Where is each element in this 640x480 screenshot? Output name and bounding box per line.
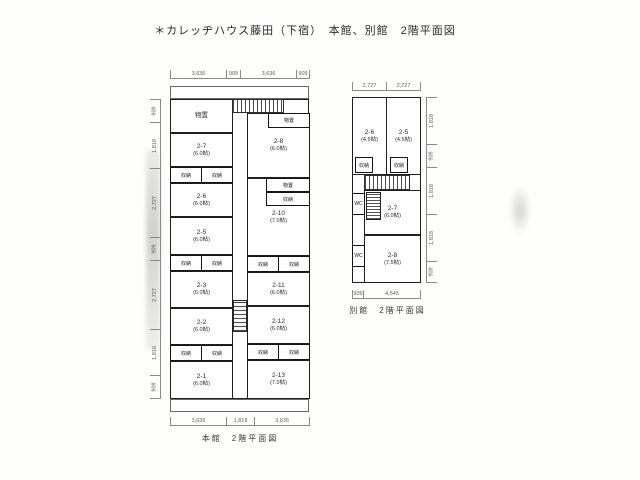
storage-label: 物置: [284, 117, 294, 124]
room-id: 2-5: [399, 129, 408, 137]
annex-closet-hatched: [366, 192, 381, 220]
dimension-label: 1,818: [234, 419, 248, 425]
closet: 収納: [247, 256, 279, 272]
dimension-label: 909: [152, 106, 158, 115]
storage-small: 物置: [268, 113, 310, 128]
closet-label: 収納: [289, 349, 299, 356]
closet-label: 収納: [394, 162, 404, 169]
closet-label: 収納: [258, 349, 268, 356]
room-size: (6.0帖): [193, 237, 210, 244]
room-id: 2-12: [272, 318, 285, 326]
main-dimensions-bottom: 3,636 1,818 3,636: [170, 417, 310, 426]
room-size: (6.0帖): [270, 290, 287, 297]
main-dimensions-top: 3,636 909 3,636 909: [170, 70, 310, 79]
room-id: 2-7: [388, 205, 397, 213]
room-2-6: 2-6 (6.0帖): [170, 183, 233, 217]
room-2-11: 2-11 (6.0帖): [247, 272, 310, 306]
dimension-label: 909: [429, 151, 435, 160]
dimension-label: 1,818: [429, 114, 435, 128]
dimension-label: 4,545: [385, 292, 399, 298]
dimension-label: 2,727: [152, 196, 158, 210]
main-dimensions-left: 909 1,818 2,727 909 2,727 1,818 909: [150, 99, 161, 399]
closet-label: 収納: [181, 172, 191, 179]
room-2-1: 2-1 (6.0帖): [170, 361, 233, 399]
balcony-bottom: [170, 399, 309, 412]
room-storage-top-left: 物置: [170, 99, 233, 133]
dimension-label: 3,636: [262, 72, 276, 78]
room-size: (6.0帖): [193, 381, 210, 388]
room-label: 物置: [195, 112, 208, 120]
dimension-label: 1,818: [152, 346, 158, 360]
closet: 収納: [247, 344, 279, 360]
room-id: 2-8: [274, 138, 283, 146]
main-plan-caption: 本館 2階平面図: [170, 433, 310, 444]
dimension-label: 909: [429, 267, 435, 276]
room-size: (6.0帖): [193, 290, 210, 297]
room-2-13: 2-13 (7.0帖): [247, 360, 310, 399]
room-size: (6.0帖): [384, 213, 401, 220]
room-id: 2-7: [197, 143, 206, 151]
room-size: (4.5帖): [361, 137, 378, 144]
wc-label: WC: [354, 201, 362, 207]
room-size: (6.0帖): [193, 327, 210, 334]
closet-label: 収納: [212, 350, 222, 357]
room-id: 2-3: [197, 282, 206, 290]
closet-label: 収納: [181, 260, 191, 267]
dimension-label: 909: [152, 382, 158, 391]
dimension-label: 3,636: [192, 72, 206, 78]
room-size: (6.0帖): [270, 146, 287, 153]
dimension-label: 2,727: [363, 84, 377, 90]
staircase-top: [232, 99, 284, 113]
closet: 収納: [278, 344, 310, 360]
room-size: (6.0帖): [270, 326, 287, 333]
floor-plan-annex: 2-6 (4.5帖) 2-5 (4.5帖) 収納 収納 2-7 (6.0帖) 2…: [352, 97, 421, 283]
dimension-label: 3,636: [275, 419, 289, 425]
balcony-top: [170, 86, 309, 99]
annex-room-2-8: 2-8 (7.5帖): [364, 235, 421, 283]
room-id: 2-6: [365, 129, 374, 137]
room-id: 2-8: [388, 252, 397, 260]
room-id: 2-10: [272, 210, 285, 218]
annex-dimensions-right: 1,818 909 1,818 1,818 909: [426, 97, 437, 283]
room-id: 2-11: [272, 282, 285, 290]
closet-label: 収納: [212, 260, 222, 267]
room-size: (4.5帖): [395, 137, 412, 144]
wc-label: WC: [354, 253, 362, 259]
closet: 収納: [201, 255, 233, 271]
storage-label: 物置: [283, 182, 293, 189]
room-id: 2-2: [197, 319, 206, 327]
annex-dimensions-bottom: 909 4,545: [352, 290, 421, 299]
room-id: 2-13: [272, 372, 285, 380]
room-size: (6.0帖): [193, 201, 210, 208]
closet-label: 収納: [258, 261, 268, 268]
dimension-label: 1,818: [429, 184, 435, 198]
dimension-label: 3,636: [192, 419, 206, 425]
room-2-7: 2-7 (6.0帖): [170, 133, 233, 167]
closet: 収納: [170, 167, 202, 183]
floor-plan-main: 物置 2-7 (6.0帖) 収納 収納 2-6 (6.0帖) 2-5 (6.0帖…: [170, 86, 310, 412]
closet-label: 収納: [283, 196, 293, 203]
scanned-floorplan-page: ＊カレッヂハウス藤田（下宿） 本館、別館 2階平面図 物置 2-7 (6.0帖)…: [0, 0, 640, 480]
annex-plan-caption: 別館 2階平面図: [340, 305, 435, 316]
dimension-label: 909: [152, 244, 158, 253]
closet-label: 収納: [212, 172, 222, 179]
room-2-3: 2-3 (6.0帖): [170, 271, 233, 308]
closet: 収納: [201, 345, 233, 361]
annex-staircase: [364, 175, 410, 190]
room-size: (7.0帖): [270, 218, 287, 225]
closet: 収納: [170, 345, 202, 361]
room-2-12: 2-12 (6.0帖): [247, 306, 310, 344]
closet: 収納: [278, 256, 310, 272]
dimension-label: 2,727: [397, 84, 411, 90]
wc: WC: [352, 193, 365, 215]
room-size: (7.5帖): [384, 260, 401, 267]
closet-label: 収納: [359, 162, 369, 169]
room-size: (6.0帖): [193, 151, 210, 158]
dimension-label: 2,727: [152, 288, 158, 302]
room-id: 2-6: [197, 193, 206, 201]
room-id: 2-1: [197, 373, 206, 381]
closet-label: 収納: [289, 261, 299, 268]
wc: WC: [352, 245, 365, 267]
closet: 収納: [355, 157, 373, 173]
dimension-label: 1,818: [152, 139, 158, 153]
room-size: (7.0帖): [270, 380, 287, 387]
closet-small: 収納: [266, 192, 310, 206]
page-title: ＊カレッヂハウス藤田（下宿） 本館、別館 2階平面図: [140, 22, 470, 38]
staircase-middle: [233, 300, 247, 332]
scan-smudge-right: [509, 185, 531, 235]
dimension-label: 909: [353, 292, 362, 298]
annex-dimensions-top: 2,727 2,727: [352, 82, 421, 91]
room-2-5: 2-5 (6.0帖): [170, 217, 233, 255]
closet: 収納: [390, 157, 408, 173]
closet: 収納: [201, 167, 233, 183]
dimension-label: 1,818: [429, 231, 435, 245]
room-id: 2-5: [197, 229, 206, 237]
dimension-label: 909: [298, 72, 307, 78]
closet-label: 収納: [181, 350, 191, 357]
storage-small: 物置: [266, 178, 310, 192]
closet: 収納: [170, 255, 202, 271]
dimension-label: 909: [229, 72, 238, 78]
room-2-2: 2-2 (6.0帖): [170, 308, 233, 345]
